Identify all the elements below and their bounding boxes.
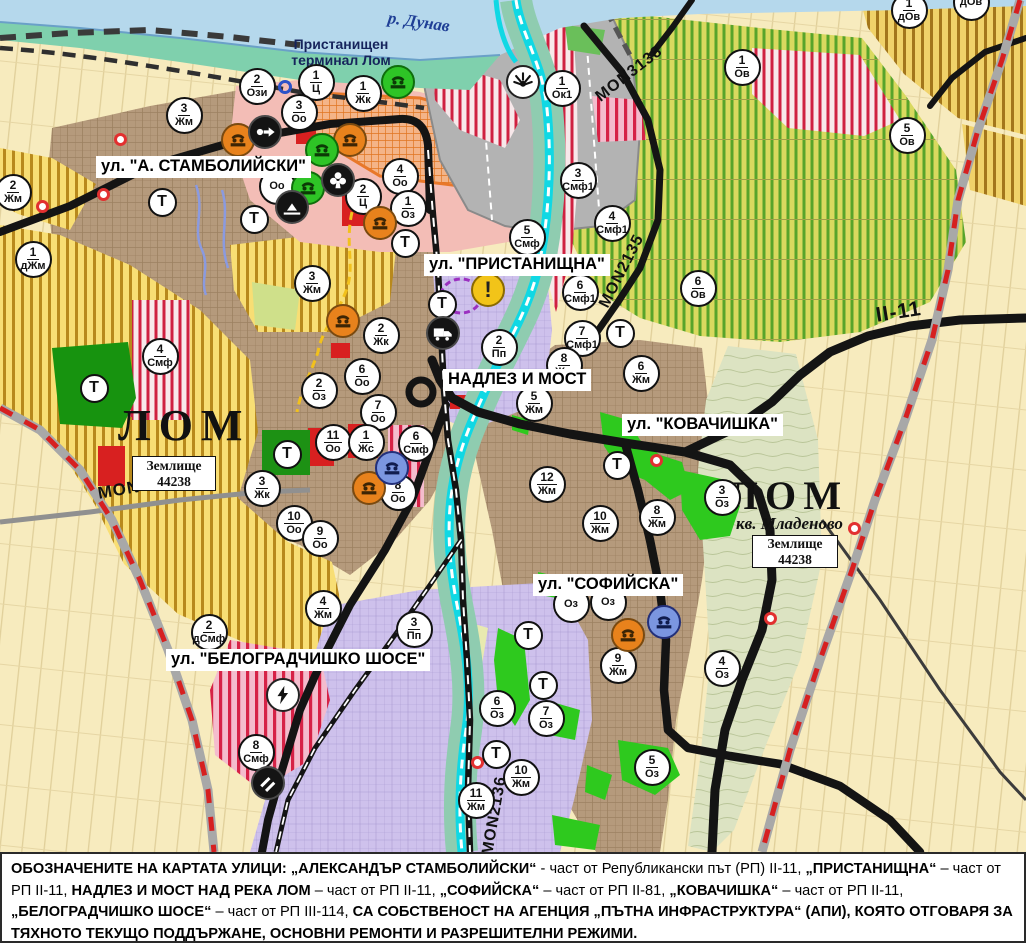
zone-marker-number: 3: [293, 99, 306, 112]
zone-marker: 1Жк: [345, 75, 382, 112]
zone-marker: 2Жк: [363, 317, 400, 354]
zone-marker-number: 4: [606, 210, 619, 223]
zone-marker: 2Жм: [0, 174, 32, 211]
monument-orange-icon: [611, 618, 645, 652]
zone-marker-code: Оз: [312, 391, 326, 403]
zone-marker-code: Жм: [632, 374, 650, 386]
zone-marker-number: 2: [493, 334, 506, 347]
zone-marker: 6Жм: [623, 355, 660, 392]
footnote-segment: – част от РП II-11,: [778, 883, 903, 899]
zone-marker: 4Смф: [142, 338, 179, 375]
zone-marker: 1дЖм: [15, 241, 52, 278]
zone-marker-number: 11: [467, 787, 486, 800]
suburb-label: кв. Младеново: [736, 514, 843, 534]
zone-marker-number: 2: [375, 322, 388, 335]
zone-marker: 4Жм: [305, 590, 342, 627]
monument-green-icon: [381, 65, 415, 99]
zone-marker-number: 3: [178, 102, 191, 115]
zone-marker-number: 7: [576, 325, 589, 338]
street-label-belogradchishko: ул. "БЕЛОГРАДЧИШКО ШОСЕ": [166, 649, 430, 671]
zone-marker-code: Оз: [715, 669, 729, 681]
zone-marker-number: 3: [716, 484, 729, 497]
zone-marker-number: 9: [612, 652, 625, 665]
zone-marker: 7Оз: [528, 700, 565, 737]
zone-marker: 3Оз: [704, 479, 741, 516]
heritage-red-dot: [36, 200, 49, 213]
zone-marker: 3Жм: [294, 265, 331, 302]
zone-marker: 6Оз: [479, 690, 516, 727]
zone-marker-code: Жк: [373, 336, 388, 348]
zone-marker: 11Оо: [315, 424, 352, 461]
zone-marker: 4Смф1: [594, 205, 631, 242]
zemlishte-box: Землище44238: [752, 535, 838, 568]
transport-stop-marker: Т: [514, 621, 543, 650]
zone-marker: 4Оо: [382, 158, 419, 195]
zone-marker: 5Оз: [634, 749, 671, 786]
street-label-nadlez: НАДЛЕЗ И МОСТ: [443, 369, 591, 391]
zone-marker: 9Жм: [600, 647, 637, 684]
zone-marker-number: 1: [357, 80, 370, 93]
transport-stop-marker: Т: [391, 229, 420, 258]
zone-marker-number: 5: [528, 390, 541, 403]
footnote-segment: - част от Републикански път (РП) II-11,: [536, 861, 805, 877]
zone-marker-number: 2: [313, 377, 326, 390]
zone-marker-code: дСмф: [193, 633, 226, 645]
street-label-kovachishka: ул. "КОВАЧИШКА": [622, 414, 783, 436]
zone-marker-number: 1: [736, 54, 749, 67]
zone-marker-number: 6: [491, 695, 504, 708]
heritage-red-dot: [650, 454, 663, 467]
zone-marker-number: 1: [556, 75, 569, 88]
zone-marker-code: Смф: [514, 238, 540, 250]
transport-stop-marker: Т: [428, 290, 457, 319]
zone-marker: 2Пп: [481, 329, 518, 366]
footnote-segment: ОБОЗНАЧЕНИТЕ НА КАРТАТА УЛИЦИ: „АЛЕКСАНД…: [11, 861, 536, 877]
zone-marker: 8Жм: [639, 499, 676, 536]
zone-marker: 2Ози: [239, 68, 276, 105]
zone-marker-code: Ов: [690, 289, 705, 301]
zone-marker-number: 5: [646, 754, 659, 767]
zone-marker-number: 1: [903, 0, 916, 11]
zone-marker: 1Жс: [348, 424, 385, 461]
monument-glyph: [311, 139, 333, 161]
monument-glyph: [387, 71, 409, 93]
zone-marker: 2Оз: [301, 372, 338, 409]
monument-blue-icon: [647, 605, 681, 639]
zone-marker-code: Оо: [291, 113, 306, 125]
zone-marker-number: 4: [154, 343, 167, 356]
map-footnote: ОБОЗНАЧЕНИТЕ НА КАРТАТА УЛИЦИ: „АЛЕКСАНД…: [0, 852, 1026, 943]
transport-stop-marker: Т: [240, 205, 269, 234]
zone-marker-number: 4: [394, 163, 407, 176]
zone-marker: 6Смф1: [562, 274, 599, 311]
zone-marker-code: Жк: [355, 94, 370, 106]
zone-marker-code: Оо: [312, 539, 327, 551]
zone-marker-number: 2: [357, 183, 370, 196]
fan-glyph: [512, 71, 534, 93]
zone-marker: 11Жм: [458, 782, 495, 819]
zone-marker-code: Смф: [147, 357, 173, 369]
zone-marker-code: Жс: [358, 443, 374, 455]
club-glyph: [327, 169, 349, 191]
zone-marker-code: Смф: [243, 753, 269, 765]
zone-marker-code: Жм: [4, 193, 22, 205]
monument-glyph: [332, 310, 354, 332]
zone-marker-code: Пп: [407, 630, 422, 642]
zone-marker-number: 4: [716, 655, 729, 668]
railcross-glyph: [257, 772, 279, 794]
zone-marker: 5Ов: [889, 117, 926, 154]
zone-marker-code: Жм: [512, 778, 530, 790]
zemlishte-title: Землище: [146, 458, 201, 474]
lightning-glyph: [272, 684, 294, 706]
footnote-segment: „ПРИСТАНИЩНА“: [805, 861, 936, 877]
zone-marker-code: Смф1: [596, 224, 628, 236]
zone-marker-code: Ов: [899, 136, 914, 148]
zone-marker: 12Жм: [529, 466, 566, 503]
heritage-red-dot: [97, 188, 110, 201]
zone-marker-code: Ов: [734, 68, 749, 80]
zone-marker-code: Смф1: [562, 181, 594, 193]
zone-marker-number: 6: [692, 275, 705, 288]
monument-glyph: [381, 457, 403, 479]
zone-marker: 3Смф1: [560, 162, 597, 199]
mountain-glyph: [281, 196, 303, 218]
transport-stop-marker: Т: [482, 740, 511, 769]
transport-stop-marker: Т: [606, 319, 635, 348]
zemlishte-title: Землище: [767, 536, 822, 552]
zone-marker-code: дОв: [960, 0, 982, 8]
zone-marker-code: Оо: [390, 493, 405, 505]
transport-stop-marker: Т: [80, 374, 109, 403]
zone-marker-code: Жк: [254, 489, 269, 501]
zone-marker-code: Оо: [370, 413, 385, 425]
zone-marker-number: 10: [511, 764, 530, 777]
zone-marker-number: 4: [317, 595, 330, 608]
mountain-black-icon: [275, 190, 309, 224]
zone-marker-code: Пп: [492, 348, 507, 360]
zone-marker-code: Ок1: [552, 89, 572, 101]
zone-marker-code: Оз: [601, 596, 615, 608]
zone-marker-number: 6: [635, 360, 648, 373]
zone-marker-number: 8: [558, 352, 571, 365]
zone-marker-code: Жм: [538, 485, 556, 497]
fan-white-icon: [506, 65, 540, 99]
zone-marker-number: 10: [590, 510, 609, 523]
footnote-segment: „КОВАЧИШКА“: [669, 883, 778, 899]
monument-glyph: [617, 624, 639, 646]
zone-marker-code: Оз: [715, 498, 729, 510]
zone-marker-code: Оз: [401, 209, 415, 221]
heritage-red-dot: [848, 522, 861, 535]
zone-marker-number: 8: [651, 504, 664, 517]
arrow-glyph: [254, 121, 276, 143]
zone-marker-number: 9: [314, 525, 327, 538]
monument-glyph: [227, 129, 249, 151]
zone-marker: 2дСмф: [191, 614, 228, 651]
zone-marker-code: Оо: [354, 377, 369, 389]
zone-marker-number: 8: [250, 739, 263, 752]
zone-marker-code: Оо: [286, 524, 301, 536]
monument-blue-icon: [375, 451, 409, 485]
zone-marker-code: Оо: [392, 177, 407, 189]
zone-marker-number: 12: [537, 471, 556, 484]
footnote-segment: „СОФИЙСКА“: [440, 883, 540, 899]
zone-marker-number: 2: [251, 73, 264, 86]
zone-marker-code: Оз: [539, 719, 553, 731]
zone-marker: 3Жк: [244, 470, 281, 507]
zone-marker-code: Оз: [564, 598, 578, 610]
zone-marker-code: Оз: [490, 709, 504, 721]
map-canvas: ОБОЗНАЧЕНИТЕ НА КАРТАТА УЛИЦИ: „АЛЕКСАНД…: [0, 0, 1026, 943]
club-black-icon: [321, 163, 355, 197]
zone-marker-number: 1: [360, 429, 373, 442]
lightning-white-icon: [266, 678, 300, 712]
monument-orange-icon: [326, 304, 360, 338]
zone-marker-code: Ц: [312, 83, 320, 95]
warning-yellow-icon: !: [471, 273, 505, 307]
railcross-black-icon: [251, 766, 285, 800]
street-label-stamboliyski: ул. "А. СТАМБОЛИЙСКИ": [96, 156, 311, 178]
zone-marker-number: 5: [901, 122, 914, 135]
monument-orange-icon: [363, 206, 397, 240]
zone-marker-code: Жм: [591, 524, 609, 536]
blue-ring-marker: [278, 80, 292, 94]
zemlishte-code: 44238: [157, 474, 191, 490]
zone-marker: 6Ов: [680, 270, 717, 307]
zone-marker-number: 11: [324, 429, 343, 442]
zone-marker-code: Оо: [325, 443, 340, 455]
zone-marker-number: 2: [203, 619, 216, 632]
zone-marker-number: 3: [408, 616, 421, 629]
zone-marker-number: 7: [540, 705, 553, 718]
zone-marker-code: Жм: [525, 404, 543, 416]
zone-marker-code: Жм: [609, 666, 627, 678]
truck-black-icon: [426, 316, 460, 350]
footnote-segment: – част от РП III-114,: [211, 904, 352, 920]
zone-marker-number: 5: [521, 224, 534, 237]
zone-marker-code: Оо: [269, 180, 284, 192]
monument-glyph: [369, 212, 391, 234]
zone-marker-code: Жм: [467, 801, 485, 813]
zone-marker: 6Оо: [344, 358, 381, 395]
transport-stop-marker: Т: [529, 671, 558, 700]
heritage-red-dot: [764, 612, 777, 625]
zone-marker-number: 1: [310, 69, 323, 82]
city-label: ЛОМ: [118, 404, 250, 448]
street-label-pristanishtna: ул. "ПРИСТАНИЩНА": [424, 254, 610, 276]
truck-glyph: [432, 322, 454, 344]
zone-marker-code: Жм: [648, 518, 666, 530]
transport-stop-marker: Т: [148, 188, 177, 217]
street-label-sofiyska: ул. "СОФИЙСКА": [533, 574, 683, 596]
zone-marker-code: Ц: [359, 197, 367, 209]
monument-glyph: [653, 611, 675, 633]
zone-marker-number: 6: [410, 430, 423, 443]
monument-glyph: [339, 129, 361, 151]
zone-marker: 3Жм: [166, 97, 203, 134]
arrow-black-icon: [248, 115, 282, 149]
zone-marker-number: 7: [372, 399, 385, 412]
zone-marker-code: дОв: [898, 11, 920, 23]
zone-marker-number: 1: [402, 195, 415, 208]
zone-marker-code: Смф1: [564, 293, 596, 305]
zone-marker: 4Оз: [704, 650, 741, 687]
footnote-segment: – част от РП II-81,: [539, 883, 669, 899]
footnote-segment: НАДЛЕЗ И МОСТ НАД РЕКА ЛОМ: [72, 883, 311, 899]
monument-glyph: [358, 477, 380, 499]
zemlishte-code: 44238: [778, 552, 812, 568]
zone-marker: 3Оо: [281, 94, 318, 131]
zone-marker: 1Ов: [724, 49, 761, 86]
port-label: Пристанищен терминал Лом: [266, 36, 416, 68]
zone-marker-number: 6: [356, 363, 369, 376]
zone-marker-code: Жм: [314, 609, 332, 621]
zone-marker-number: 6: [574, 279, 587, 292]
zone-marker-number: 3: [256, 475, 269, 488]
zone-marker-code: Жм: [175, 116, 193, 128]
zone-marker-code: Жм: [303, 284, 321, 296]
zone-marker: 10Жм: [582, 505, 619, 542]
zone-marker-number: 10: [284, 510, 303, 523]
zone-marker-code: дЖм: [20, 260, 45, 272]
zone-marker-code: Оз: [645, 768, 659, 780]
heritage-red-dot: [114, 133, 127, 146]
zemlishte-box: Землище44238: [132, 456, 216, 491]
zone-marker-number: 3: [572, 167, 585, 180]
zone-marker-code: Ози: [247, 87, 268, 99]
zone-marker-number: 1: [27, 246, 40, 259]
zone-marker: 5Смф: [509, 219, 546, 256]
zone-marker-code: Смф: [403, 444, 429, 456]
warning-glyph: !: [484, 279, 491, 301]
zone-marker: 10Жм: [503, 759, 540, 796]
zone-marker-number: 3: [306, 270, 319, 283]
city-label: ЛОМ: [728, 476, 848, 516]
zone-marker-number: 2: [7, 179, 20, 192]
zone-marker: 9Оо: [302, 520, 339, 557]
zone-marker: 8Смф: [238, 734, 275, 771]
zone-marker: 1Ок1: [544, 70, 581, 107]
zone-marker: 3Пп: [396, 611, 433, 648]
transport-stop-marker: Т: [603, 451, 632, 480]
footnote-segment: – част от РП II-11,: [311, 883, 440, 899]
transport-stop-marker: Т: [273, 440, 302, 469]
footnote-segment: „БЕЛОГРАДЧИШКО ШОСЕ“: [11, 904, 211, 920]
